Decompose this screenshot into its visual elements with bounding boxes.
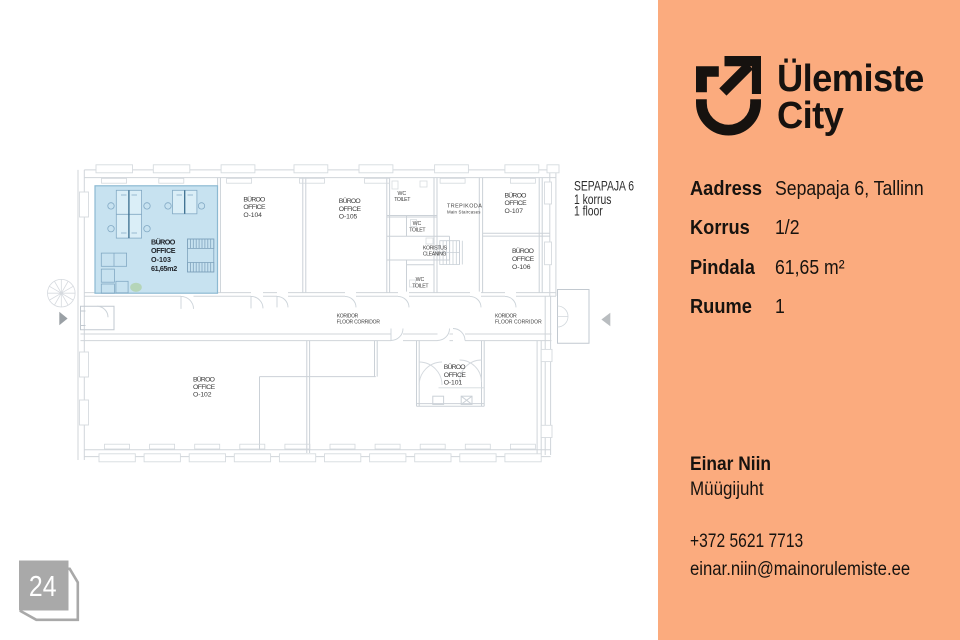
svg-text:WC: WC — [398, 191, 407, 197]
svg-text:BÜROO: BÜROO — [339, 197, 361, 205]
svg-text:TOILET: TOILET — [409, 227, 426, 233]
svg-text:FLOOR CORRIDOR: FLOOR CORRIDOR — [495, 319, 542, 325]
svg-text:BÜROO: BÜROO — [243, 195, 265, 203]
svg-text:BÜROO: BÜROO — [193, 375, 215, 383]
svg-text:Main Staircases: Main Staircases — [447, 210, 481, 215]
svg-text:O-101: O-101 — [444, 380, 463, 387]
svg-text:O-102: O-102 — [193, 392, 212, 399]
svg-text:O-107: O-107 — [505, 208, 524, 215]
svg-text:CLEANING: CLEANING — [423, 252, 447, 258]
svg-text:KORISTUS: KORISTUS — [423, 246, 448, 252]
svg-text:OFFICE: OFFICE — [512, 256, 535, 263]
svg-text:BÜROO: BÜROO — [512, 247, 534, 255]
svg-text:OFFICE: OFFICE — [243, 204, 266, 211]
svg-text:TOILET: TOILET — [412, 283, 429, 289]
svg-text:BÜROO: BÜROO — [505, 191, 527, 199]
svg-text:O-103: O-103 — [151, 255, 171, 264]
svg-text:WC: WC — [416, 277, 425, 283]
svg-text:O-106: O-106 — [512, 264, 531, 271]
svg-text:O-105: O-105 — [339, 214, 358, 221]
svg-text:BÜROO: BÜROO — [444, 363, 466, 371]
svg-text:FLOOR CORRIDOR: FLOOR CORRIDOR — [337, 319, 381, 325]
svg-text:O-104: O-104 — [243, 212, 262, 219]
svg-text:TOILET: TOILET — [394, 197, 411, 203]
svg-text:24: 24 — [29, 571, 57, 603]
svg-text:OFFICE: OFFICE — [193, 384, 216, 391]
svg-text:OFFICE: OFFICE — [444, 372, 467, 379]
svg-text:BÜROO: BÜROO — [151, 237, 176, 246]
svg-text:WC: WC — [413, 221, 422, 227]
svg-text:OFFICE: OFFICE — [339, 206, 362, 213]
svg-text:OFFICE: OFFICE — [151, 246, 176, 255]
svg-text:OFFICE: OFFICE — [505, 200, 528, 207]
svg-text:61,65m2: 61,65m2 — [151, 264, 177, 273]
svg-text:1 floor: 1 floor — [574, 203, 603, 219]
